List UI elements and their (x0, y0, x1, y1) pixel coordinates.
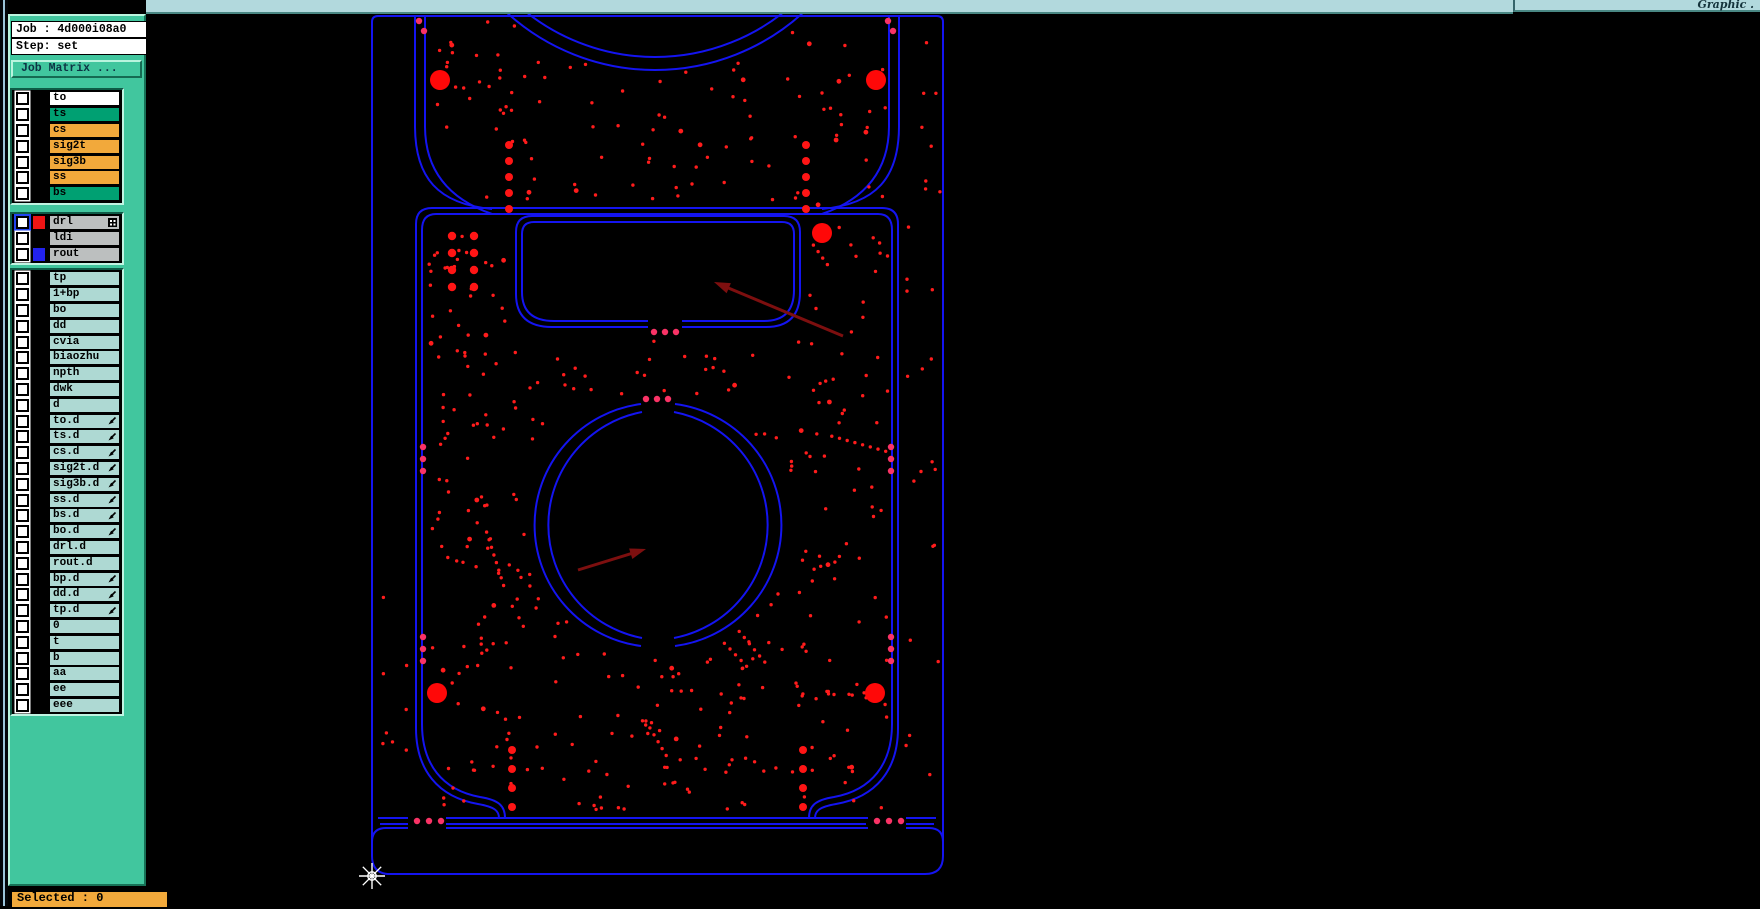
layer-row-rout: rout (12, 247, 122, 263)
layer-label-tp[interactable]: tp (49, 271, 120, 286)
layer-checkbox-tp[interactable] (16, 272, 29, 285)
layer-checkbox-rout[interactable] (16, 248, 29, 261)
layer-row-drl: drl (12, 215, 122, 231)
layer-label-dd[interactable]: dd (49, 319, 120, 334)
layer-checkbox-ts.d[interactable] (16, 430, 29, 443)
layer-swatch-empty (33, 415, 45, 428)
layer-label-npth[interactable]: npth (49, 366, 120, 381)
layer-row-bo.d: bo.d (12, 524, 122, 540)
layer-swatch-empty (33, 187, 45, 200)
layer-label-to[interactable]: to (49, 91, 120, 106)
layer-checkbox-cs[interactable] (16, 124, 29, 137)
layer-swatch-empty (33, 171, 45, 184)
layer-swatch-empty (33, 124, 45, 137)
pcb-panel-drawing (146, 14, 1760, 906)
mouse-bite-drills (414, 18, 904, 824)
layer-swatch-empty (33, 367, 45, 380)
layer-row-bo: bo (12, 303, 122, 319)
layer-label-b[interactable]: b (49, 651, 120, 666)
layer-label-dd.d[interactable]: dd.d (49, 587, 120, 602)
layer-row-rout.d: rout.d (12, 555, 122, 571)
layer-label-rout.d[interactable]: rout.d (49, 556, 120, 571)
layer-swatch-empty (33, 573, 45, 586)
layer-label-sig2t.d[interactable]: sig2t.d (49, 461, 120, 476)
layer-label-eee[interactable]: eee (49, 698, 120, 713)
layer-swatch-empty (33, 232, 45, 245)
drill-tool-pen-icon (107, 495, 117, 505)
layer-checkbox-drl[interactable] (16, 216, 29, 229)
layer-row-drl.d: drl.d (12, 540, 122, 556)
layer-checkbox-ts[interactable] (16, 108, 29, 121)
layer-swatch-empty (33, 541, 45, 554)
layer-label-cs[interactable]: cs (49, 123, 120, 138)
layer-checkbox-dd.d[interactable] (16, 588, 29, 601)
drill-table-grid-icon (108, 218, 117, 227)
layer-group-board-layers: totscssig2tsig3bssbs (10, 88, 124, 205)
layer-checkbox-cs.d[interactable] (16, 446, 29, 459)
layer-swatch-empty (33, 336, 45, 349)
layer-row-npth: npth (12, 366, 122, 382)
layer-row-biaozhu: biaozhu (12, 350, 122, 366)
layer-row-sig3b: sig3b (12, 154, 122, 170)
layer-row-to.d: to.d (12, 413, 122, 429)
layer-checkbox-bs[interactable] (16, 187, 29, 200)
layer-swatch-empty (33, 351, 45, 364)
selected-count-status: Selected : 0 (10, 890, 169, 909)
layer-row-cvia: cvia (12, 334, 122, 350)
layer-checkbox-ss.d[interactable] (16, 494, 29, 507)
layer-label-bs.d[interactable]: bs.d (49, 508, 120, 523)
drill-tool-pen-icon (107, 527, 117, 537)
layer-checkbox-cvia[interactable] (16, 336, 29, 349)
graphic-canvas[interactable] (146, 14, 1760, 906)
layer-row-ss: ss (12, 170, 122, 186)
layer-label-d[interactable]: d (49, 398, 120, 413)
layer-label-ee[interactable]: ee (49, 682, 120, 697)
layer-swatch-empty (33, 557, 45, 570)
job-name-field: Job : 4d000i08a0 (11, 21, 147, 38)
layer-row-ss.d: ss.d (12, 492, 122, 508)
layer-checkbox-sig3b[interactable] (16, 156, 29, 169)
layer-swatch-empty (33, 604, 45, 617)
layer-checkbox-ee[interactable] (16, 683, 29, 696)
layer-row-to: to (12, 91, 122, 107)
cam-application-window: { "window": { "top_bar_right_label": "Gr… (0, 0, 1760, 906)
layer-label-to.d[interactable]: to.d (49, 414, 120, 429)
layer-label-sig2t[interactable]: sig2t (49, 139, 120, 154)
layer-checkbox-1+bp[interactable] (16, 288, 29, 301)
top-bar-graphic-section: Graphic . (1513, 0, 1760, 12)
layer-color-swatch (33, 216, 45, 229)
layer-checkbox-drl.d[interactable] (16, 541, 29, 554)
layer-swatch-empty (33, 683, 45, 696)
layer-swatch-empty (33, 509, 45, 522)
drill-tool-pen-icon (107, 479, 117, 489)
drill-tool-pen-icon (107, 606, 117, 616)
layer-checkbox-d[interactable] (16, 399, 29, 412)
layer-checkbox-bs.d[interactable] (16, 509, 29, 522)
layer-label-cs.d[interactable]: cs.d (49, 445, 120, 460)
layer-row-ts.d: ts.d (12, 429, 122, 445)
layer-swatch-empty (33, 699, 45, 712)
drill-tool-pen-icon (107, 590, 117, 600)
window-left-edge (0, 0, 8, 906)
layer-row-bp.d: bp.d (12, 571, 122, 587)
layer-label-sig3b[interactable]: sig3b (49, 155, 120, 170)
drill-tool-pen-icon (107, 448, 117, 458)
layer-checkbox-biaozhu[interactable] (16, 351, 29, 364)
layer-label-bp.d[interactable]: bp.d (49, 572, 120, 587)
drill-tool-pen-icon (107, 574, 117, 584)
drill-tool-pen-icon (107, 416, 117, 426)
layer-row-sig2t.d: sig2t.d (12, 461, 122, 477)
layer-swatch-empty (33, 140, 45, 153)
rout-outline (372, 14, 943, 874)
layer-row-ts: ts (12, 107, 122, 123)
drill-hole-dots (381, 20, 941, 811)
layer-swatch-empty (33, 478, 45, 491)
layer-swatch-empty (33, 652, 45, 665)
layer-checkbox-ss[interactable] (16, 171, 29, 184)
layer-checkbox-ldi[interactable] (16, 232, 29, 245)
layer-row-aa: aa (12, 666, 122, 682)
layer-swatch-empty (33, 667, 45, 680)
layer-label-ts[interactable]: ts (49, 107, 120, 122)
layer-row-cs: cs (12, 123, 122, 139)
job-matrix-button[interactable]: Job Matrix ... (11, 60, 142, 78)
layer-label-0[interactable]: 0 (49, 619, 120, 634)
layer-swatch-empty (33, 620, 45, 633)
snap-cursor-icon (359, 863, 385, 889)
layer-row-bs.d: bs.d (12, 508, 122, 524)
layer-row-ldi: ldi (12, 231, 122, 247)
drill-tool-pen-icon (107, 511, 117, 521)
layer-row-t: t (12, 634, 122, 650)
layer-row-tp.d: tp.d (12, 603, 122, 619)
layer-label-ts.d[interactable]: ts.d (49, 429, 120, 444)
layer-label-aa[interactable]: aa (49, 666, 120, 681)
layer-row-1+bp: 1+bp (12, 287, 122, 303)
layer-swatch-empty (33, 383, 45, 396)
layer-label-ss.d[interactable]: ss.d (49, 493, 120, 508)
layer-swatch-empty (33, 92, 45, 105)
layer-checkbox-sig3b.d[interactable] (16, 478, 29, 491)
layer-row-dwk: dwk (12, 382, 122, 398)
layer-row-tp: tp (12, 271, 122, 287)
layer-row-sig2t: sig2t (12, 138, 122, 154)
layer-swatch-empty (33, 462, 45, 475)
layer-checkbox-bo.d[interactable] (16, 525, 29, 538)
layer-checkbox-b[interactable] (16, 652, 29, 665)
layer-swatch-empty (33, 446, 45, 459)
layer-checkbox-0[interactable] (16, 620, 29, 633)
graphic-mode-label: Graphic . (1697, 0, 1754, 10)
layer-checkbox-to[interactable] (16, 92, 29, 105)
layer-row-eee: eee (12, 698, 122, 714)
layer-label-sig3b.d[interactable]: sig3b.d (49, 477, 120, 492)
layer-row-0: 0 (12, 619, 122, 635)
layer-label-dwk[interactable]: dwk (49, 382, 120, 397)
layer-swatch-empty (33, 304, 45, 317)
layer-label-rout[interactable]: rout (49, 247, 120, 262)
layer-checkbox-tp.d[interactable] (16, 604, 29, 617)
layer-checkbox-bp.d[interactable] (16, 573, 29, 586)
layer-row-cs.d: cs.d (12, 445, 122, 461)
layer-label-ss[interactable]: ss (49, 170, 120, 185)
layer-row-sig3b.d: sig3b.d (12, 476, 122, 492)
layer-row-dd.d: dd.d (12, 587, 122, 603)
drill-tool-pen-icon (107, 432, 117, 442)
layer-swatch-empty (33, 494, 45, 507)
layer-label-t[interactable]: t (49, 635, 120, 650)
layer-label-bs[interactable]: bs (49, 186, 120, 201)
layer-label-bo.d[interactable]: bo.d (49, 524, 120, 539)
layer-checkbox-dwk[interactable] (16, 383, 29, 396)
top-title-bar (146, 0, 1513, 14)
layer-label-cvia[interactable]: cvia (49, 335, 120, 350)
layer-group-misc-layers: tp1+bpboddcviabiaozhunpthdwkdto.dts.dcs.… (10, 268, 124, 716)
layer-swatch-empty (33, 156, 45, 169)
layer-label-tp.d[interactable]: tp.d (49, 603, 120, 618)
layer-swatch-empty (33, 430, 45, 443)
layer-label-drl.d[interactable]: drl.d (49, 540, 120, 555)
layer-swatch-empty (33, 399, 45, 412)
layer-label-drl[interactable]: drl (49, 215, 120, 230)
layer-swatch-empty (33, 272, 45, 285)
layer-swatch-empty (33, 588, 45, 601)
layer-checkbox-to.d[interactable] (16, 415, 29, 428)
layer-row-bs: bs (12, 186, 122, 202)
layer-label-ldi[interactable]: ldi (49, 231, 120, 246)
layer-checkbox-dd[interactable] (16, 320, 29, 333)
layer-checkbox-npth[interactable] (16, 367, 29, 380)
layer-checkbox-rout.d[interactable] (16, 557, 29, 570)
large-drill-holes (427, 70, 886, 703)
layer-swatch-empty (33, 525, 45, 538)
tooling-hole-columns (448, 141, 810, 811)
layer-checkbox-sig2t.d[interactable] (16, 462, 29, 475)
layer-label-1+bp[interactable]: 1+bp (49, 287, 120, 302)
layer-checkbox-aa[interactable] (16, 667, 29, 680)
layer-checkbox-t[interactable] (16, 636, 29, 649)
layer-checkbox-sig2t[interactable] (16, 140, 29, 153)
drill-tool-pen-icon (107, 463, 117, 473)
step-name-field: Step: set (11, 38, 147, 55)
layer-checkbox-bo[interactable] (16, 304, 29, 317)
layer-row-dd: dd (12, 318, 122, 334)
layer-swatch-empty (33, 320, 45, 333)
layer-row-b: b (12, 650, 122, 666)
layer-swatch-empty (33, 636, 45, 649)
layer-group-drill-rout-layers: drlldirout (10, 212, 124, 265)
layer-swatch-empty (33, 288, 45, 301)
layer-row-ee: ee (12, 682, 122, 698)
layer-color-swatch (33, 248, 45, 261)
layer-sidebar: Job : 4d000i08a0 Step: set Job Matrix ..… (8, 14, 146, 886)
layer-swatch-empty (33, 108, 45, 121)
layer-row-d: d (12, 397, 122, 413)
layer-label-biaozhu[interactable]: biaozhu (49, 350, 120, 365)
layer-label-bo[interactable]: bo (49, 303, 120, 318)
layer-checkbox-eee[interactable] (16, 699, 29, 712)
